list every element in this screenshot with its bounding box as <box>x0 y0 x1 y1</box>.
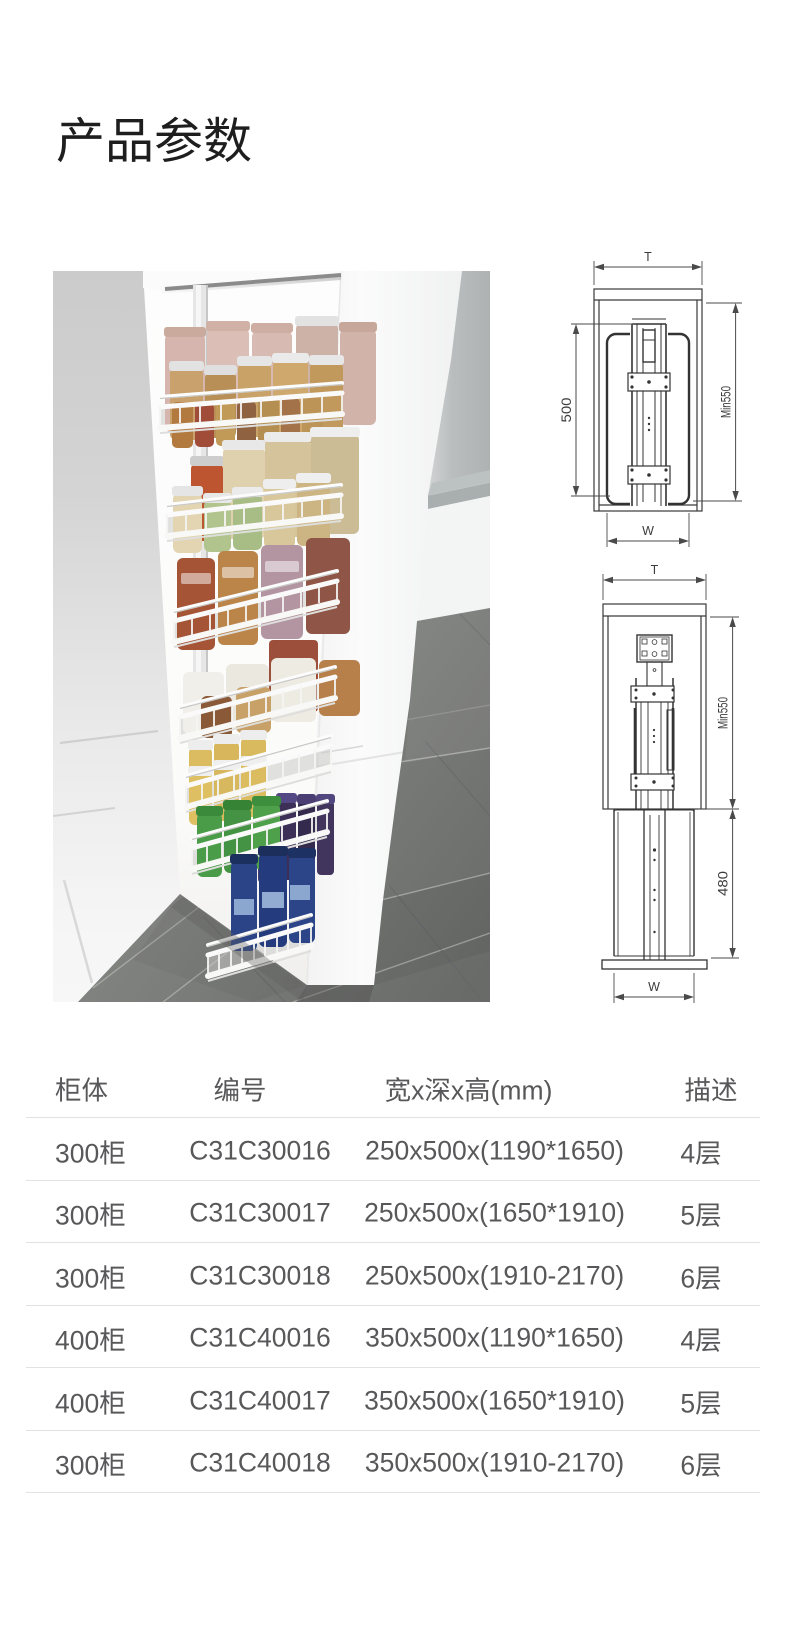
svg-text:500: 500 <box>559 398 574 423</box>
svg-text:Min550: Min550 <box>719 386 734 418</box>
svg-text:T: T <box>644 250 652 264</box>
svg-text:Min550: Min550 <box>716 697 731 729</box>
svg-text:W: W <box>642 524 654 538</box>
svg-text:480: 480 <box>716 871 731 896</box>
svg-text:T: T <box>651 563 659 577</box>
svg-text:W: W <box>648 980 660 994</box>
